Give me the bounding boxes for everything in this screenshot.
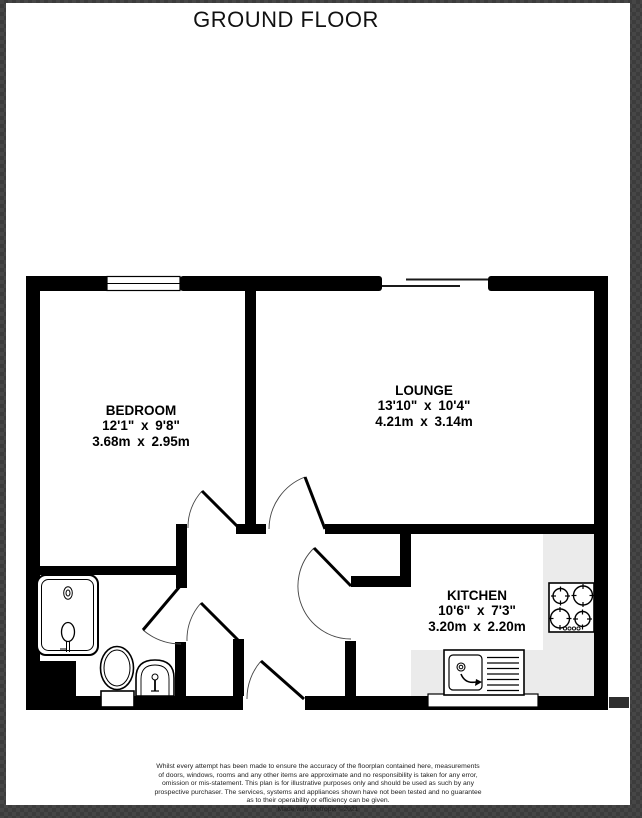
bedroom-door-arc — [188, 491, 202, 528]
wall-bedroom-lounge-divider — [245, 291, 256, 525]
cupboard-door-leaf — [201, 603, 239, 641]
bedroom-imperial-dims: 12'1" x 9'8" — [41, 418, 241, 433]
kitchen-label: KITCHEN 10'6" x 7'3" 3.20m x 2.20m — [377, 588, 577, 634]
lounge-door-leaf — [305, 477, 325, 529]
wall-lounge-bottom — [325, 524, 608, 534]
lounge-metric-dims: 4.21m x 3.14m — [324, 414, 524, 429]
bathroom-door — [143, 585, 181, 644]
wall-bathroom-top — [26, 566, 183, 575]
kitchen-imperial-dims: 10'6" x 7'3" — [377, 603, 577, 618]
walls — [26, 276, 608, 710]
entrance-door-arc — [247, 661, 261, 699]
basin-icon — [136, 660, 174, 696]
bathroom-door-leaf — [143, 585, 181, 630]
wall-kitchen-jog — [351, 576, 411, 587]
kitchen-door-arc — [298, 548, 351, 639]
bedroom-name: BEDROOM — [41, 403, 241, 418]
wall-bathroom-pillar — [176, 524, 187, 588]
lounge-door-arc — [269, 477, 305, 529]
lounge-label: LOUNGE 13'10" x 10'4" 4.21m x 3.14m — [324, 383, 524, 429]
disclaimer-line: of doors, windows, rooms and any other i… — [6, 772, 630, 781]
floorplan-page: { "page": { "title": "GROUND FLOOR" }, "… — [0, 0, 642, 818]
bathroom-storage-block — [33, 661, 76, 697]
bedroom-door-leaf — [202, 491, 240, 529]
bedroom-metric-dims: 3.68m x 2.95m — [41, 434, 241, 449]
kitchen-sink-icon — [428, 650, 538, 707]
kitchen-metric-dims: 3.20m x 2.20m — [377, 619, 577, 634]
cupboard-door-arc — [187, 603, 201, 641]
bathroom-door-arc — [143, 630, 181, 644]
disclaimer-line: omission or mis-statement. This plan is … — [6, 780, 630, 789]
patio-sliding-door-icon — [382, 280, 488, 287]
kitchen-door-leaf — [314, 548, 351, 586]
kitchen-door — [298, 548, 351, 639]
kitchen-name: KITCHEN — [377, 588, 577, 603]
disclaimer-line: as to their operability or efficiency ca… — [6, 797, 630, 806]
disclaimer: Whilst every attempt has been made to en… — [6, 763, 630, 815]
wall-kitchen-west-lower — [345, 641, 356, 696]
lounge-door — [269, 477, 325, 529]
toilet-icon — [101, 647, 135, 708]
disclaimer-line: prospective purchaser. The services, sys… — [6, 789, 630, 798]
lounge-imperial-dims: 13'10" x 10'4" — [324, 398, 524, 413]
entrance-door-leaf — [261, 661, 304, 699]
wall-kitchen-west-upper — [400, 534, 411, 578]
wall-divider-stub — [236, 524, 266, 534]
wall-top-right — [488, 276, 608, 291]
lounge-name: LOUNGE — [324, 383, 524, 398]
disclaimer-line: Whilst every attempt has been made to en… — [6, 763, 630, 772]
wall-entrance-spur — [233, 639, 244, 696]
corner-mark — [609, 697, 629, 708]
bedroom-door — [188, 491, 240, 529]
wall-right — [594, 276, 608, 710]
credit-line: Made with Metropix ©2021 — [6, 806, 630, 815]
cupboard-door — [187, 603, 239, 641]
entrance-door — [247, 661, 304, 699]
bedroom-window-icon — [107, 277, 180, 291]
wall-bathroom-east — [175, 642, 186, 696]
shower-icon — [37, 575, 98, 655]
wall-top-mid — [180, 276, 382, 291]
bedroom-label: BEDROOM 12'1" x 9'8" 3.68m x 2.95m — [41, 403, 241, 449]
